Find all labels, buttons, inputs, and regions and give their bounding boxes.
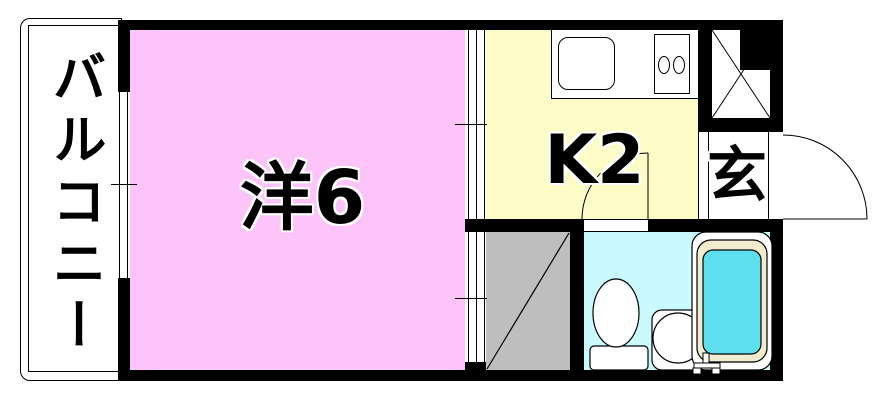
- living-room-label: 洋6: [180, 153, 425, 243]
- floor-plan: バルコニー 洋6 K2 玄: [0, 0, 882, 401]
- toilet-icon: [590, 279, 648, 370]
- kitchen-label: K2: [502, 120, 687, 202]
- closet-diagonal: [487, 233, 569, 369]
- entrance-door-arc: [783, 135, 867, 219]
- balcony-label: バルコニー: [41, 36, 107, 372]
- bathtub-icon: [692, 232, 772, 370]
- shoe-cabinet-icon: [712, 30, 770, 118]
- entrance-label: 玄: [699, 134, 775, 218]
